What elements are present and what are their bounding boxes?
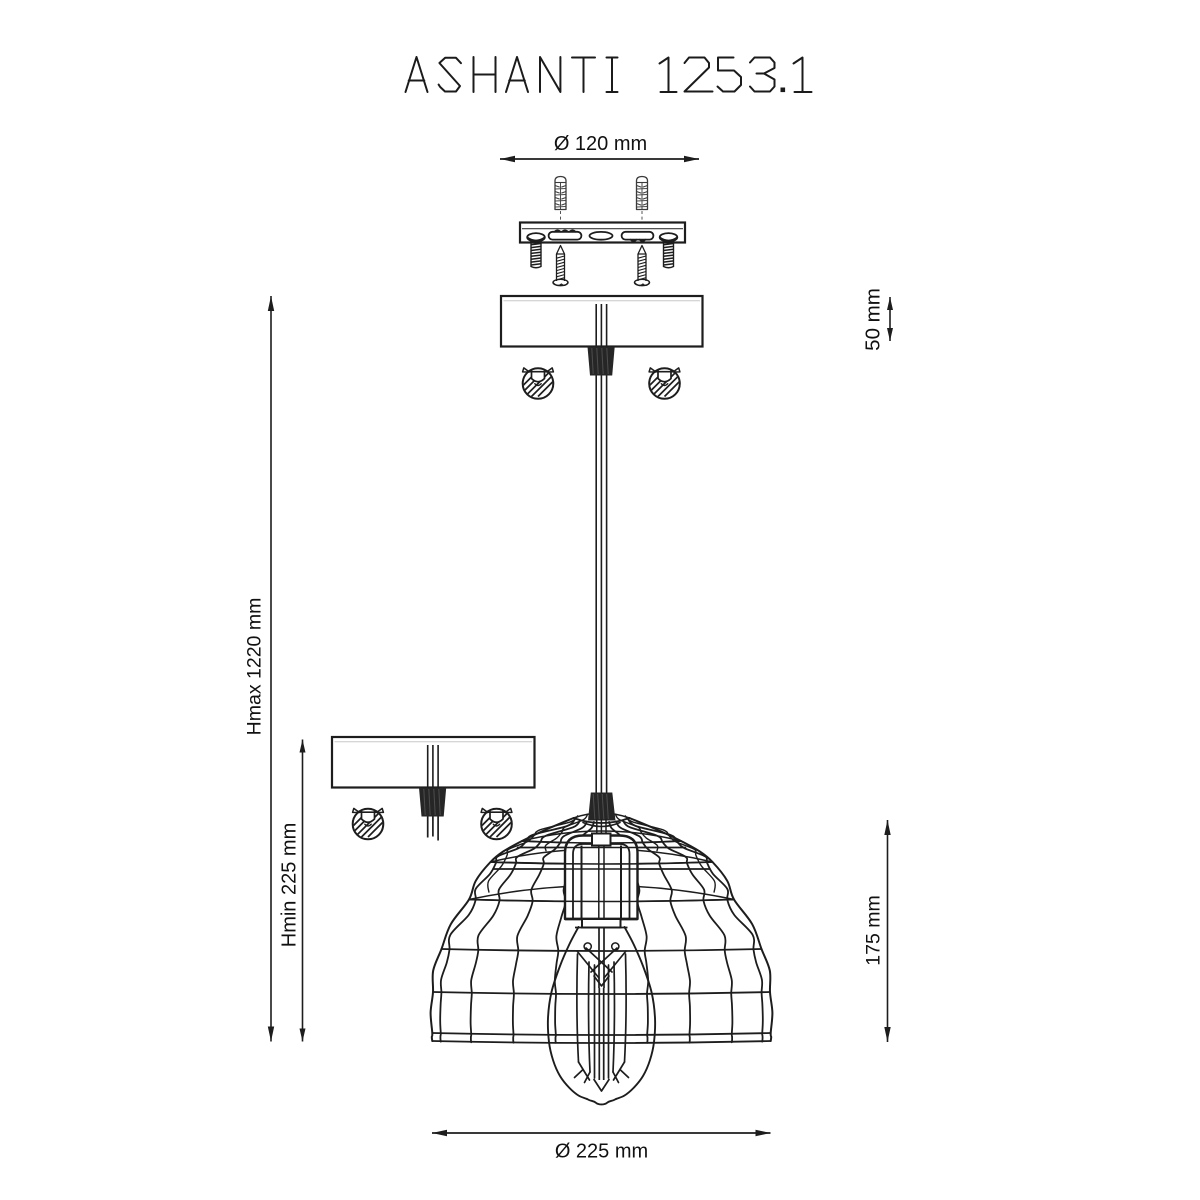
- svg-text:Hmax 1220 mm: Hmax 1220 mm: [244, 598, 266, 736]
- svg-text:Ø 225 mm: Ø 225 mm: [555, 1141, 648, 1163]
- svg-text:Ø 120 mm: Ø 120 mm: [554, 133, 647, 155]
- svg-text:Hmin 225 mm: Hmin 225 mm: [279, 823, 301, 947]
- svg-text:50 mm: 50 mm: [862, 288, 885, 351]
- svg-text:175 mm: 175 mm: [863, 895, 885, 965]
